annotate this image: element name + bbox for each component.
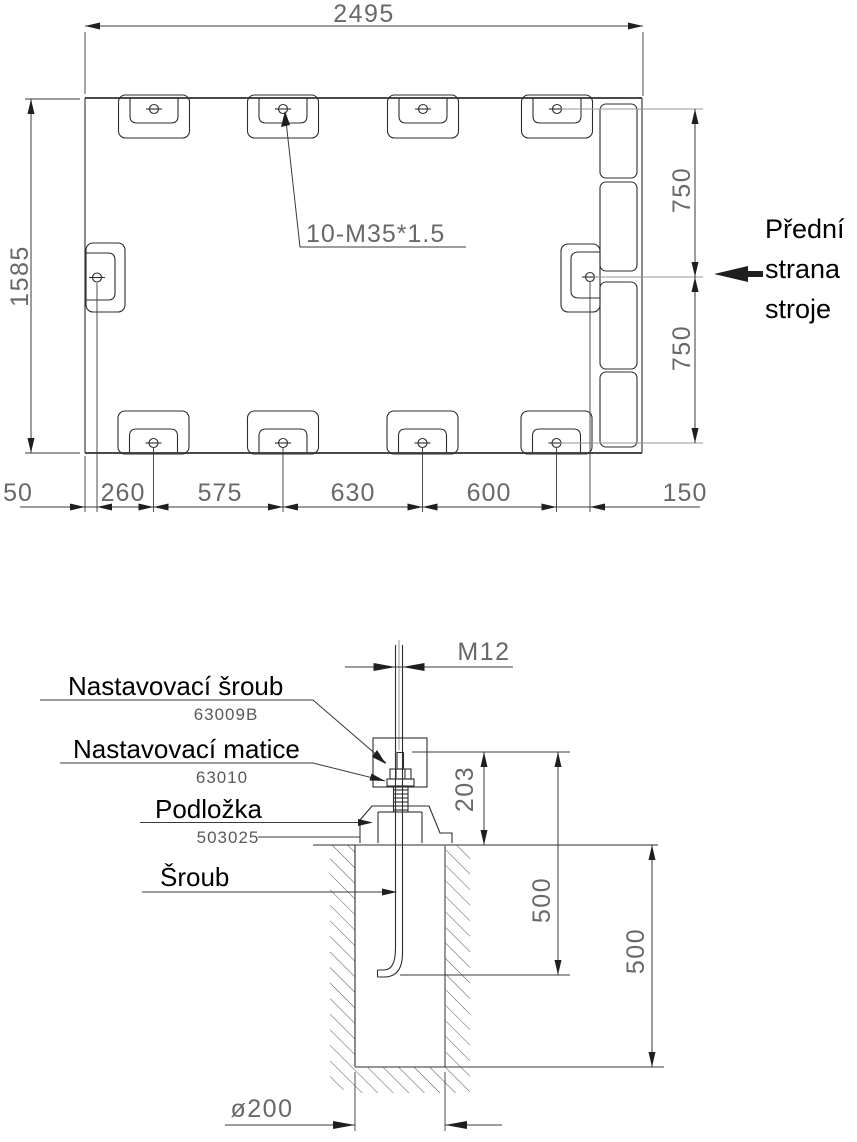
part-label-3: Podložka [155, 794, 262, 824]
front-label-line2: strana [765, 254, 841, 284]
part-no-1: 63009B [194, 705, 259, 724]
machine-foundation-drawing: 2495 1585 750 750 [0, 0, 857, 1142]
dim-width-text: 2495 [333, 0, 395, 28]
bottom-mounting-pads [118, 411, 592, 454]
dim-bolt-depth-text: 500 [528, 877, 556, 923]
left-middle-pad [86, 243, 125, 312]
top-mounting-pads [119, 95, 593, 138]
dim-width-2495: 2495 [85, 0, 643, 96]
dim-height-text: 1585 [6, 245, 34, 307]
dim-chain-bottom: 50 260 575 630 600 150 [3, 282, 707, 512]
dim-rows-750: 750 750 [668, 109, 699, 443]
base-plate-outline [85, 98, 642, 453]
dim-pit-depth-500: 500 [622, 845, 656, 1067]
part-label-adjusting-nut: Nastavovací matice 63010 [60, 734, 385, 787]
hole-note-text: 10-M35*1.5 [306, 220, 445, 248]
dim-bolt-depth-500: 500 [400, 752, 570, 975]
adjusting-screw-assembly [387, 753, 414, 813]
dim-203-text: 203 [451, 766, 479, 812]
dim-pit-diameter-text: ø200 [231, 1095, 294, 1123]
plan-view: 2495 1585 750 750 [3, 0, 845, 512]
part-label-bolt: Šroub [142, 862, 397, 896]
foundation-pit [313, 845, 664, 1067]
part-no-3: 503025 [197, 828, 260, 847]
dim-thread-text: M12 [457, 638, 510, 666]
part-label-1: Nastavovací šroub [68, 671, 283, 701]
part-label-washer: Podložka 503025 [140, 794, 373, 847]
dim-chain-260: 260 [101, 479, 146, 507]
right-rail [600, 104, 637, 447]
dim-thread-m12: M12 [345, 638, 513, 671]
drawing-svg: 2495 1585 750 750 [0, 0, 857, 1142]
dim-row-upper-text: 750 [668, 167, 696, 213]
front-side-arrow-icon [714, 266, 763, 282]
nut-flange [387, 779, 414, 786]
dim-chain-630: 630 [331, 479, 376, 507]
dim-chain-150: 150 [663, 479, 708, 507]
detail-view: M12 203 500 500 [40, 638, 664, 1131]
dim-chain-50: 50 [3, 479, 33, 507]
part-no-2: 63010 [196, 768, 248, 787]
adjusting-nut [390, 769, 411, 779]
right-middle-pad [561, 244, 600, 312]
hole-note-leader: 10-M35*1.5 [281, 111, 466, 248]
foundation-hatch [330, 845, 470, 1093]
dim-chain-575: 575 [198, 479, 243, 507]
dim-chain-600: 600 [467, 479, 512, 507]
part-label-4: Šroub [160, 862, 229, 892]
dim-pit-depth-text: 500 [622, 928, 650, 974]
dim-row-lower-text: 750 [668, 325, 696, 371]
dim-height-1585: 1585 [6, 99, 80, 453]
front-label-line1: Přední [765, 214, 845, 244]
front-side-label: Přední strana stroje [714, 214, 845, 324]
part-label-2: Nastavovací matice [73, 734, 300, 764]
front-label-line3: stroje [765, 294, 831, 324]
dim-203: 203 [412, 752, 570, 845]
anchor-bolt [378, 640, 403, 977]
